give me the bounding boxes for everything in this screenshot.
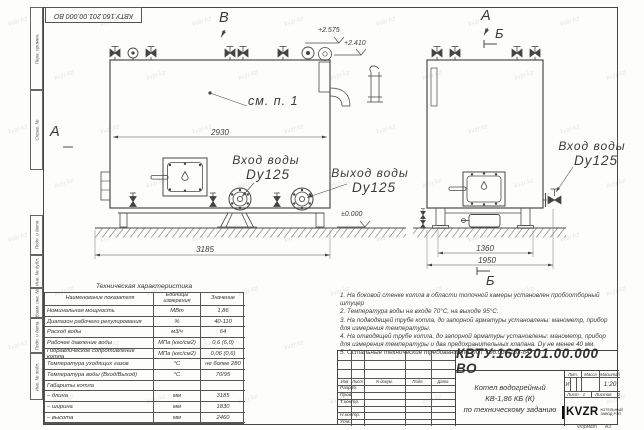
spec-unit-cell: мм <box>154 391 201 402</box>
spec-value-cell <box>201 381 245 392</box>
drain-valves <box>130 193 280 207</box>
spec-name-cell: – длина <box>45 391 154 402</box>
mass-value <box>582 378 600 391</box>
spec-name-cell: Рабочее давление воды <box>45 338 154 349</box>
spec-table-grid: Наименование показателя Единицы измерени… <box>44 292 244 424</box>
spec-value-cell: 3185 <box>201 391 245 402</box>
outlet-label: Выход воды <box>331 166 408 180</box>
side-inlet-valve-icon <box>543 189 561 207</box>
dim-1360: 1360 <box>476 244 494 253</box>
spec-unit-cell: % <box>154 317 201 328</box>
scale-header: Масштаб <box>600 371 620 378</box>
spec-value-cell: 40-110 <box>201 317 245 328</box>
col-ndocum: N докум. <box>364 378 405 385</box>
dim-3185: 3185 <box>196 245 214 254</box>
spec-table-title: Техническая характеристика <box>44 283 244 292</box>
spec-value-cell: 1,86 <box>201 306 245 317</box>
spec-unit-cell: мм <box>154 402 201 413</box>
kvzr-emblem-icon <box>562 406 564 419</box>
outlet-size: Dy125 <box>352 180 396 195</box>
side-view <box>413 28 573 275</box>
spec-value-cell: 1830 <box>201 402 245 413</box>
spec-value-cell: 0,6 (6,0) <box>201 338 245 349</box>
inlet-flange-icon <box>229 188 251 210</box>
spec-unit-cell: МПа (кгс/см2) <box>154 349 201 360</box>
top-valves <box>110 47 314 61</box>
row-razrab: Разраб. <box>340 385 366 392</box>
col-izm: Изм <box>338 378 351 385</box>
mass-header: Масса <box>582 371 600 378</box>
scale-value: 1:20 <box>600 378 620 391</box>
spec-name-cell: Температура воды (Вход/Выход) <box>45 370 154 381</box>
row-tkontr: Т.контр. <box>340 399 366 406</box>
title-block-right: Лит. Масса Масштаб И 1:20 Лист 1 Листов … <box>564 371 619 426</box>
inlet-label: Вход воды <box>232 153 299 167</box>
spec-unit-cell: МПа (кгс/см2) <box>154 338 201 349</box>
stamp-inv-podl: Инв. № подл. <box>30 353 43 400</box>
kvzr-logo-text: KVZR <box>566 406 599 418</box>
col-list: Лист <box>351 378 364 385</box>
sheets-label: Листов <box>591 391 611 398</box>
ash-drawer-icon <box>461 215 500 228</box>
spec-name-cell: Диапазон рабочего регулирования <box>45 317 154 328</box>
front-supports <box>118 213 324 227</box>
sheet-label: Лист <box>567 392 579 397</box>
drawing-sheet: kvzr.kzkvzr.kzkvzr.kzkvzr.kzkvzr.kzkvzr.… <box>0 0 644 430</box>
company-name: КОТЕЛЬНЫЙ ЗАВОД РЭП <box>601 408 624 417</box>
spec-name-cell: Номинальная мощность <box>45 306 154 317</box>
sheet-value: 1 <box>583 392 586 397</box>
row-utv: Утв. <box>340 419 366 426</box>
flue-outlet-icon <box>319 48 384 107</box>
outlet-flange-icon <box>291 188 313 210</box>
elevation-top2: +2.410 <box>344 40 366 47</box>
company-logo: KVZR КОТЕЛЬНЫЙ ЗАВОД РЭП <box>565 398 620 426</box>
front-door-icon <box>151 158 207 196</box>
spec-unit-cell <box>154 381 201 392</box>
stamp-vzam-inv: Взам. инв. № <box>30 288 43 318</box>
note-line: 3. На подводящей трубе котла, до запорно… <box>340 317 614 333</box>
note-line: 1. На боковой стенке котла в области топ… <box>340 292 614 308</box>
col-podp: Подп. <box>405 378 431 385</box>
doc-designation: КВТУ.160.201.00.000 ВО <box>455 351 619 371</box>
spec-unit-cell: м3/ч <box>154 327 201 338</box>
inlet-size: Dy125 <box>246 167 290 182</box>
dim-1950: 1950 <box>478 256 496 265</box>
row-prov: Пров. <box>340 392 366 399</box>
stamp-perv-primen: Перв. примен. <box>30 7 43 90</box>
spec-name-cell: Температура уходящих газов <box>45 359 154 370</box>
stamp-inv-dubl: Инв. № дубл. <box>30 255 43 288</box>
format-value: А3 <box>605 424 611 430</box>
spec-value-cell: 64 <box>201 327 245 338</box>
doc-name: Котел водогрейный КВ-1,86 КБ (К) по техн… <box>455 371 564 426</box>
elevation-ground: ±0.000 <box>341 211 362 218</box>
format-stamp: ФорматА3 <box>577 424 611 430</box>
top-designation-text: КВТУ.160.201.00.000 ВО <box>54 12 133 19</box>
side-door-icon <box>449 172 505 206</box>
spec-value-cell: 2460 <box>201 413 245 424</box>
spec-value-cell: 0,06 (0,6) <box>201 349 245 360</box>
spec-name-cell: Гидравлическое сопротивление котла <box>45 349 154 360</box>
spec-unit-cell: °С <box>154 370 201 381</box>
title-block: КВТУ.160.201.00.000 ВО Изм Лист N докум.… <box>337 350 618 425</box>
stamp-sprav-no: Справ. № <box>30 90 43 170</box>
front-view <box>63 30 406 259</box>
sight-glass-icon <box>101 172 110 200</box>
spec-name-cell: Расход воды <box>45 327 154 338</box>
section-marker-v-top: В <box>219 10 229 26</box>
spec-name-cell: Габариты котла <box>45 381 154 392</box>
side-top-valves <box>432 47 540 61</box>
row-nkontr: Н.контр. <box>340 412 366 419</box>
stamp-podp-data-2: Подп. и дата <box>30 318 43 353</box>
spec-header-name: Наименование показателя <box>45 293 154 306</box>
spec-value-cell: не более 280 <box>201 359 245 370</box>
section-marker-b-bottom: Б <box>486 273 494 288</box>
spec-value-cell: 70/95 <box>201 370 245 381</box>
sheets-value: 2 <box>618 392 621 397</box>
top-designation-stamp: КВТУ.160.201.00.000 ВО <box>45 7 142 23</box>
spec-table: Техническая характеристика Наименование … <box>44 283 244 424</box>
dim-2930: 2930 <box>211 128 229 137</box>
side-inlet-label: Вход воды <box>558 139 625 153</box>
lit-header: Лит. <box>565 371 582 378</box>
spec-unit-cell: °С <box>154 359 201 370</box>
spec-unit-cell: мм <box>154 413 201 424</box>
spec-header-value: Значение <box>201 293 245 306</box>
spec-header-units: Единицы измерения <box>154 293 201 306</box>
col-data: Дата <box>431 378 455 385</box>
spec-name-cell: – ширина <box>45 402 154 413</box>
section-marker-b-top: Б <box>495 26 503 41</box>
side-supports <box>433 208 534 228</box>
spec-unit-cell: МВт <box>154 306 201 317</box>
stamp-podp-data-1: Подп. и дата <box>30 215 43 255</box>
elevation-top: +2.575 <box>318 27 340 34</box>
section-marker-a-left: А <box>50 124 60 140</box>
side-inlet-size: Dy125 <box>574 153 618 168</box>
note-line: 2. Температура воды на входе 70°С, на вы… <box>340 308 614 316</box>
detail-reference: см. п. 1 <box>248 94 299 108</box>
section-marker-a-right: А <box>481 8 491 24</box>
spec-name-cell: – высота <box>45 413 154 424</box>
